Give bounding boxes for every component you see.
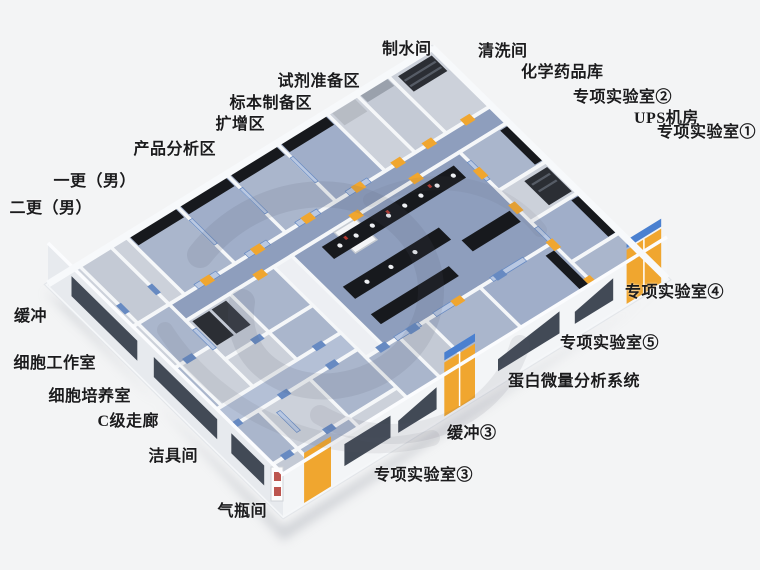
- label-first-change-male: 一更（男）: [53, 167, 136, 191]
- label-special-lab-5: 专项实验室⑤: [560, 329, 659, 353]
- label-cell-culture: 细胞培养室: [48, 382, 131, 406]
- label-class-c-corridor: C级走廊: [97, 407, 159, 431]
- label-cell-workroom: 细胞工作室: [13, 349, 96, 373]
- label-product-analysis: 产品分析区: [133, 135, 216, 159]
- lab-3d-floorplan: 制水间 清洗间 化学药品库 专项实验室② UPS机房 专项实验室① 试剂准备区 …: [0, 0, 760, 570]
- label-reagent-prep: 试剂准备区: [277, 67, 360, 91]
- label-water-room: 制水间: [382, 35, 432, 59]
- label-chemical-store: 化学药品库: [521, 58, 604, 82]
- label-buffer-3: 缓冲③: [447, 419, 497, 443]
- label-special-lab-1: 专项实验室①: [657, 118, 756, 142]
- label-amplification: 扩增区: [215, 110, 265, 134]
- label-buffer: 缓冲: [14, 302, 47, 326]
- label-protein-micro-analysis: 蛋白微量分析系统: [508, 367, 640, 391]
- label-second-change-male: 二更（男）: [9, 194, 92, 218]
- label-cleaning-tools-room: 洁具间: [148, 442, 198, 466]
- label-gas-cylinder-room: 气瓶间: [217, 497, 267, 521]
- label-special-lab-3: 专项实验室③: [374, 461, 473, 485]
- label-special-lab-4: 专项实验室④: [625, 278, 724, 302]
